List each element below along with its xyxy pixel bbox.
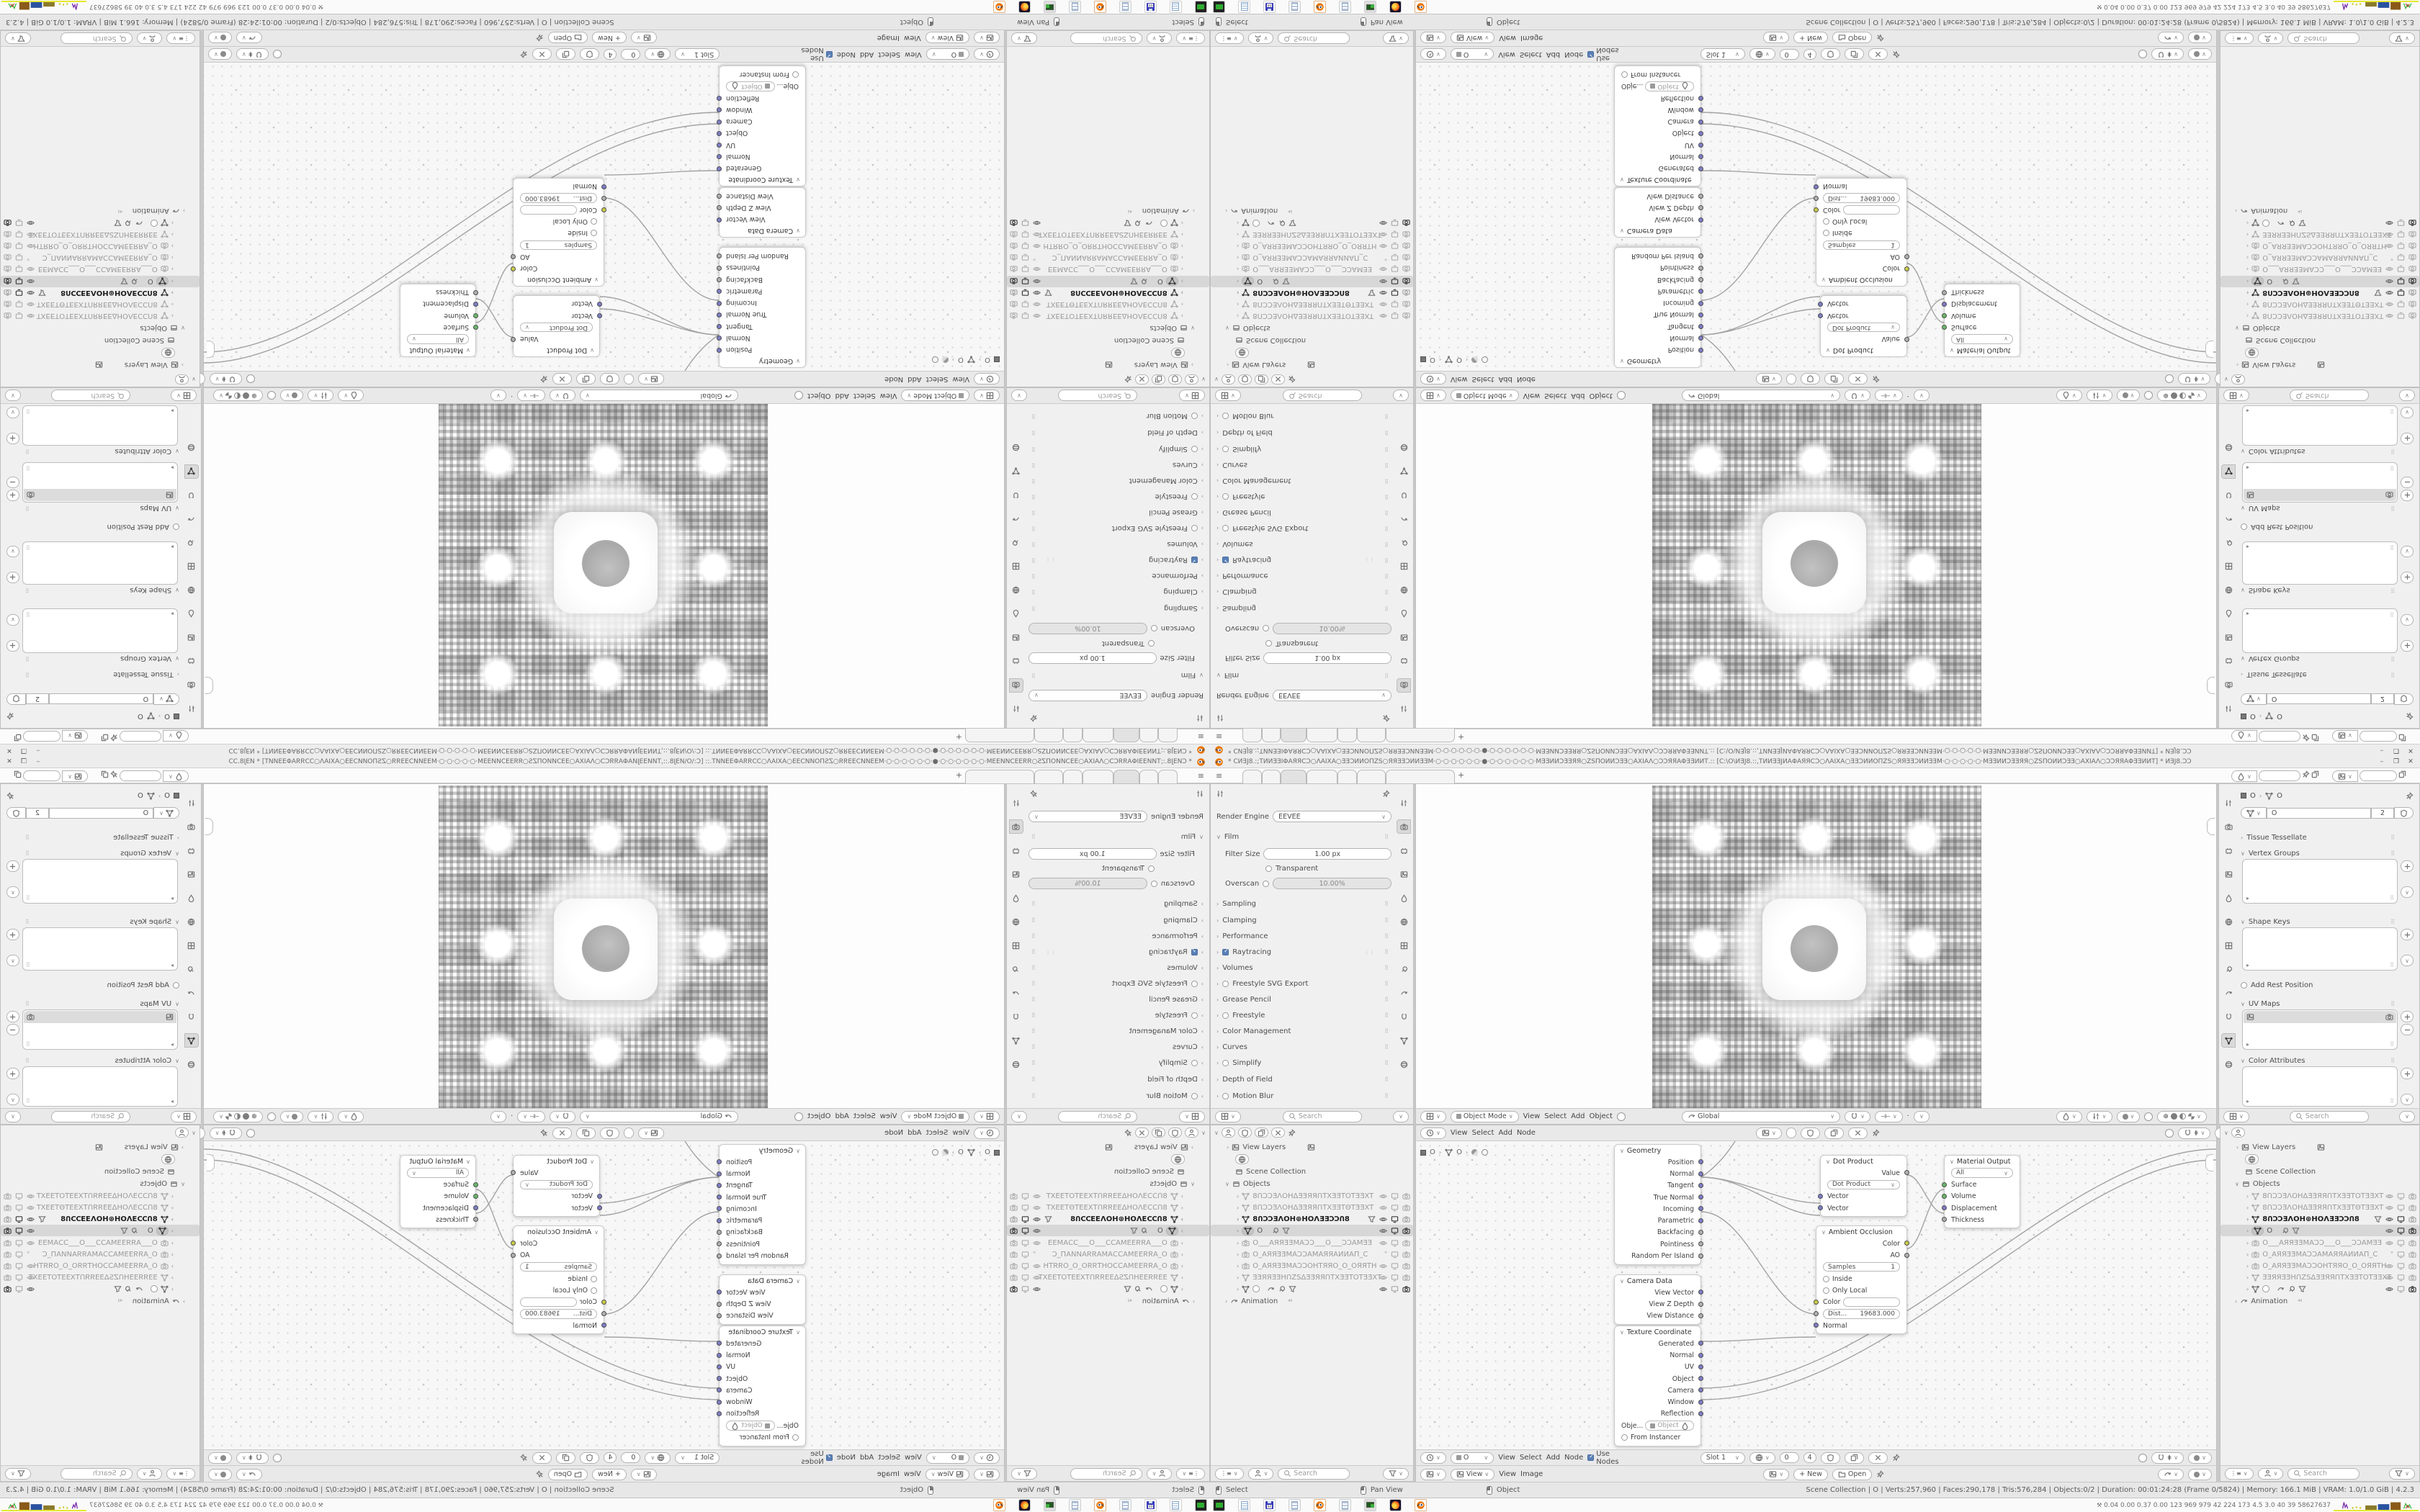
tab-constraints[interactable] — [1009, 1009, 1023, 1024]
fake-user-button[interactable] — [1168, 1128, 1182, 1138]
taskbar-notepad-icon[interactable] — [1170, 1, 1182, 13]
filter-icon-button[interactable] — [2231, 1128, 2245, 1138]
breadcrumb-object[interactable]: O — [2250, 713, 2256, 721]
menu-node[interactable]: Node — [1517, 375, 1536, 383]
motion-blur-checkbox[interactable] — [1222, 1093, 1229, 1099]
tab-constraints[interactable] — [1397, 488, 1411, 503]
freestyle-svg-checkbox[interactable] — [1191, 526, 1198, 532]
search-input[interactable]: Search — [1283, 1111, 1362, 1122]
menu-select[interactable]: Select — [853, 1112, 876, 1120]
workspace-tab-active[interactable] — [1281, 770, 1307, 783]
section-color-attributes[interactable]: ∨Color Attributes⠿ — [22, 1055, 179, 1066]
taskbar-calculator2-icon[interactable] — [1069, 1499, 1081, 1511]
gizmos-dropdown[interactable]: ∨ — [236, 32, 262, 44]
view-layers-row[interactable]: ›View Layers — [1007, 1141, 1209, 1153]
proportional-dropdown[interactable]: ∨ — [490, 390, 506, 402]
snap-circle[interactable] — [2138, 50, 2147, 59]
filter-dropdown-left[interactable]: ∨ — [1248, 1468, 1274, 1480]
breadcrumb-object[interactable]: O — [164, 792, 170, 800]
color-attributes-list[interactable]: ▸⠿ — [22, 405, 178, 446]
tab-output[interactable] — [1397, 843, 1411, 858]
transform-orientation-dropdown[interactable]: Global∨ — [580, 1111, 738, 1122]
maximize-button[interactable]: ❐ — [19, 747, 29, 754]
node-texture-coordinate[interactable]: ∨Texture Coordinate Generated Normal UV … — [719, 1326, 806, 1446]
copy-button[interactable] — [1255, 1128, 1268, 1138]
outliner-item[interactable]: ›O_АЯЯƎƎMАϽϽOHTЯЯO_O_OЯЯTH — [1, 240, 200, 252]
section-color-management[interactable]: ›Color Management⠿ — [1028, 475, 1204, 487]
workspace-tab[interactable] — [1034, 770, 1063, 783]
menu-select[interactable]: Select — [926, 1129, 949, 1137]
tab-world[interactable] — [1009, 583, 1023, 598]
outliner-item[interactable]: ›O_АЯЯƎƎMАϽϽАMАЯЯАИИАП_Ϲᘁ — [1, 252, 200, 264]
section-freestyle-svg[interactable]: ›Freestyle SVG Export⠿ — [1028, 523, 1204, 534]
scene-collection-row[interactable]: Scene Collection — [2220, 1166, 2419, 1177]
tab-physics[interactable] — [2221, 986, 2236, 1000]
tab-material[interactable] — [1397, 441, 1411, 455]
tab-modifiers[interactable] — [1397, 962, 1411, 976]
tool-icon[interactable] — [1216, 714, 1224, 722]
snapping-toggle[interactable]: ⋕∨ — [210, 374, 243, 385]
title-bar[interactable]: * ϹИƎJ8.:;ТИИƎƎІΦАЯЯϹϽ○ΛАІХА○ƎƎϽИИОΠΖS○Я… — [1210, 756, 2420, 768]
outliner-item[interactable]: ›8ՈϽϽƎΛOHΔƎƎЯЯՈTXƎƎTΘTƎƎXT — [1211, 299, 1413, 310]
remove-uv-map-button[interactable] — [6, 1024, 19, 1035]
fake-user-button[interactable] — [1238, 374, 1252, 384]
tab-output[interactable] — [1009, 654, 1023, 669]
node-camera-data[interactable]: ∨Camera Data View Vector View Z Depth Vi… — [719, 1274, 806, 1325]
breadcrumb-object[interactable]: O — [164, 713, 170, 721]
node-dot-product[interactable]: ∨Dot Product Value Dot Product∨ Vector V… — [513, 295, 600, 357]
compositor-row[interactable] — [1007, 1153, 1209, 1165]
menu-node[interactable]: Node — [884, 375, 903, 383]
new-image-button[interactable]: + New — [592, 1469, 627, 1480]
filter-icon-button[interactable] — [1185, 374, 1198, 384]
snapping-toggle[interactable]: ⋕∨ — [236, 49, 269, 60]
tab-material[interactable] — [1397, 1057, 1411, 1071]
menu-add[interactable]: Add — [860, 50, 874, 58]
fake-user-button[interactable] — [1238, 1128, 1252, 1138]
fake-user-button[interactable] — [1168, 374, 1182, 384]
uv-map-item[interactable] — [24, 489, 176, 501]
node-canvas[interactable]: O› O› ∨Geometry Position Normal Tangent … — [1416, 1141, 2216, 1449]
film-section[interactable]: ∨Film⠿ — [1028, 670, 1204, 681]
maximize-button[interactable]: ❐ — [2391, 747, 2401, 754]
editor-type-button[interactable]: ∨ — [2223, 390, 2249, 402]
unlink-button[interactable] — [1271, 374, 1285, 384]
unlink-material-button[interactable] — [1868, 1452, 1888, 1464]
uv-map-item[interactable] — [24, 1011, 176, 1023]
outliner-item[interactable]: ›8ՈϽϽƎΛOHΔƎƎЯЯՈTXƎƎTOTƎƎXT — [2220, 1190, 2419, 1202]
taskbar-blender2-icon[interactable] — [993, 1, 1005, 13]
outliner-item[interactable]: ›ƎƎЯЯƎƎHՈΖSΔƎƎЯЯՈTXƎƎTOTƎƎXT — [2220, 229, 2419, 240]
title-bar[interactable]: * ϹИƎJ8.:;ТИИƎƎІΦАЯЯϹϽ○ΛАІХА○ƎƎϽИИОΠΖS○Я… — [1210, 744, 2420, 756]
section-sampling[interactable]: ›Sampling⠿ — [1216, 898, 1391, 909]
outliner-item-selected[interactable]: ›O — [2220, 1225, 2419, 1236]
tab-output[interactable] — [2221, 654, 2236, 669]
editor-type-button[interactable]: ∨ — [974, 390, 1000, 402]
shading-mode-pill[interactable]: ⊕ ∨ — [2157, 1111, 2206, 1122]
snapping-toggle[interactable]: ⋕∨ — [236, 1452, 269, 1464]
breadcrumb-data[interactable]: O — [2277, 713, 2282, 721]
tab-render[interactable] — [1397, 678, 1411, 693]
node-canvas[interactable]: O› O› ∨Geometry Position Normal Tangent … — [204, 1141, 1004, 1449]
wireframe-icon[interactable]: ⊕ — [251, 1113, 257, 1120]
workspace-tab[interactable] — [1386, 770, 1455, 783]
material-datablock-button[interactable]: ∨ — [645, 49, 671, 60]
vertex-group-specials-button[interactable]: ∨ — [6, 614, 19, 626]
transparent-checkbox[interactable] — [1148, 641, 1155, 647]
outliner-item-selected[interactable]: ›O — [1, 1225, 200, 1236]
mesh-name-field[interactable]: O — [2267, 694, 2371, 705]
menu-select[interactable]: Select — [1544, 392, 1567, 400]
add-uv-map-button[interactable] — [6, 1011, 19, 1022]
animation-row[interactable]: ›Animation⁴² — [1007, 205, 1209, 217]
workspace-tab[interactable] — [1139, 770, 1158, 783]
output-target-dropdown[interactable]: All∨ — [1951, 334, 2013, 344]
taskbar-blender2-icon[interactable] — [1415, 1499, 1427, 1511]
collapse-icon[interactable]: ∨ — [1201, 1130, 1206, 1136]
view-layers-row[interactable]: ›View Layers — [1211, 1141, 1413, 1153]
color-attributes-list[interactable]: ▸⠿ — [2242, 1066, 2398, 1107]
mesh-name-field[interactable]: O — [49, 808, 153, 819]
tab-world[interactable] — [184, 914, 199, 929]
fake-user-button[interactable] — [1821, 1452, 1840, 1464]
section-performance[interactable]: ›Performance⠿ — [1216, 930, 1391, 942]
section-tissue-tessellate[interactable]: ›Tissue Tessellate⠿ — [2241, 832, 2398, 843]
tab-render[interactable] — [2221, 678, 2236, 693]
overscan-input[interactable]: 10.00% — [1028, 878, 1147, 889]
tab-output[interactable] — [2221, 843, 2236, 858]
outliner-item[interactable]: › — [1211, 217, 1413, 229]
tab-world[interactable] — [1009, 914, 1023, 929]
search-input[interactable]: Search — [60, 1468, 133, 1480]
tool-icon[interactable] — [1196, 790, 1204, 798]
taskbar-blender-icon[interactable] — [1094, 1499, 1106, 1511]
inside-checkbox[interactable] — [591, 1276, 597, 1282]
taskbar-save-icon[interactable]: 64 — [1263, 1499, 1276, 1511]
section-grease-pencil[interactable]: ›Grease Pencil⠿ — [1216, 507, 1391, 518]
collapse-icon[interactable]: ∨ — [1214, 1130, 1219, 1136]
open-image-button[interactable]: Open — [548, 32, 588, 44]
title-bar[interactable]: * ϹИƎJ8.:;ТИИƎƎІΦАЯЯϹϽ○ΛАІХА○ƎƎϽИИОΠΖS○Я… — [0, 744, 1210, 756]
vertex-groups-list[interactable]: ▸⠿ — [22, 608, 178, 653]
overscan-input[interactable]: 10.00% — [1028, 623, 1147, 634]
editor-type-button[interactable]: ∨ — [1420, 49, 1446, 60]
add-vertex-group-button[interactable] — [6, 860, 19, 872]
section-simplify[interactable]: ›Simplify⠿ — [1216, 444, 1391, 455]
outliner-item[interactable]: ›8ՈϽϽƎΛOHΔƎƎЯЯՈTXƎƎTOTƎƎXT — [1211, 1190, 1413, 1202]
inside-checkbox[interactable] — [591, 230, 597, 236]
display-mode-dropdown[interactable]: ⋮≡∨ — [1215, 1468, 1244, 1480]
vector-math-operation-dropdown[interactable]: Dot Product∨ — [520, 323, 593, 333]
uv-maps-list[interactable]: ▸⠿ — [22, 1009, 178, 1050]
material-name-field[interactable]: 0 — [621, 49, 640, 60]
mode-dropdown[interactable]: Object Mode∨ — [901, 390, 969, 402]
workspace-tab[interactable] — [1357, 729, 1386, 742]
material-shading-icon[interactable] — [234, 392, 241, 399]
viewport-3d[interactable]: ∨ Object Mode∨ View Select Add Object Gl… — [203, 783, 1005, 1125]
workspace-tab[interactable] — [1063, 729, 1083, 742]
node-camera-data[interactable]: ∨Camera Data View Vector View Z Depth Vi… — [1614, 1274, 1701, 1325]
freestyle-checkbox[interactable] — [1191, 1012, 1198, 1019]
vector-math-operation-dropdown[interactable]: Dot Product∨ — [520, 1180, 593, 1190]
tab-scene[interactable] — [184, 891, 199, 905]
collapse-icon[interactable]: ∨ — [2224, 1130, 2228, 1136]
taskbar-monitor-icon[interactable] — [1364, 1499, 1376, 1511]
section-performance[interactable]: ›Performance⠿ — [1216, 570, 1391, 582]
tool-icon[interactable] — [1216, 790, 1224, 798]
gizmos-dropdown[interactable]: ∨ — [338, 1111, 364, 1122]
vertex-group-specials-button[interactable]: ∨ — [2401, 614, 2414, 626]
viewlayer-datablock-selector[interactable]: ∨ — [2332, 770, 2406, 782]
section-freestyle[interactable]: ›Freestyle⠿ — [1216, 1009, 1391, 1021]
add-rest-position-checkbox[interactable] — [2241, 524, 2247, 531]
vertex-group-specials-button[interactable]: ∨ — [2401, 886, 2414, 898]
copy-datablock-button[interactable] — [576, 374, 596, 385]
add-rest-position-row[interactable]: Add Rest Position — [2241, 521, 2398, 533]
editor-type-button[interactable]: ∨ — [1420, 1452, 1446, 1464]
color-attribute-specials-button[interactable]: ∨ — [2401, 1094, 2414, 1105]
menu-view[interactable]: View — [1523, 392, 1541, 400]
workspace-tab[interactable] — [1307, 770, 1337, 783]
hamburger-menu-icon[interactable]: ≡ — [1198, 771, 1204, 780]
solid-shading-icon[interactable] — [243, 392, 249, 399]
uv-map-item[interactable] — [2244, 489, 2396, 501]
workspace-tab[interactable] — [1063, 770, 1083, 783]
outliner-item-selected[interactable]: ›O — [2220, 276, 2419, 287]
sidebar-toggle-arrow[interactable] — [207, 341, 215, 358]
workspace-tab[interactable] — [1083, 770, 1113, 783]
section-shape-keys[interactable]: ∨Shape Keys⠿ — [22, 585, 179, 596]
editor-type-button[interactable]: ∨ — [1420, 390, 1446, 402]
uv-maps-list[interactable]: ▸⠿ — [2242, 462, 2398, 503]
render-engine-dropdown[interactable]: EEVEE∨ — [1028, 690, 1147, 701]
tab-render[interactable] — [184, 819, 199, 834]
workspace-tab-active[interactable] — [1281, 729, 1307, 742]
taskbar-blender-icon[interactable] — [1314, 1499, 1326, 1511]
add-shape-key-button[interactable] — [6, 572, 19, 583]
unlink-button[interactable] — [1848, 1128, 1868, 1139]
material-users-count[interactable]: 4 — [1803, 49, 1816, 60]
menu-select[interactable]: Select — [926, 375, 949, 383]
display-mode-dropdown[interactable]: ⋮≡∨ — [166, 33, 195, 45]
camera-icon[interactable] — [27, 1013, 35, 1021]
editor-type-button[interactable]: ∨ — [1179, 390, 1205, 402]
outliner-item-selected[interactable]: ›O — [1211, 276, 1413, 287]
menu-view[interactable]: View — [904, 34, 921, 42]
section-depth-of-field[interactable]: ›Depth of Field⠿ — [1216, 1074, 1391, 1085]
vector-math-operation-dropdown[interactable]: Dot Product∨ — [1827, 1180, 1900, 1190]
editor-type-button[interactable]: ∨ — [1420, 1128, 1446, 1139]
node-ambient-occlusion[interactable]: ∨Ambient Occlusion Color AO Samples1 Ins… — [1816, 178, 1907, 287]
filter-funnel-dropdown[interactable]: ∨ — [1383, 1468, 1409, 1480]
outliner-item[interactable]: ›O_АЯЯƎƎMАϽϽАMАЯЯАИИАП_Ϲᘁ — [1211, 252, 1413, 264]
taskbar-firefox-icon[interactable] — [1018, 1, 1031, 13]
outliner-item[interactable]: ›8ՈϽϽƎΛOHΔƎƎЯЯՈTXƎƎTOTƎƎXT — [1, 1190, 200, 1202]
shader-type-dropdown[interactable]: O∨ — [926, 1452, 969, 1464]
object-selector[interactable]: Object — [1645, 81, 1694, 91]
tab-modifiers[interactable] — [184, 536, 199, 550]
shading-circle[interactable] — [2144, 1112, 2153, 1121]
section-clamping[interactable]: ›Clamping⠿ — [1216, 586, 1391, 598]
scene-collection-row[interactable]: Scene Collection — [2220, 335, 2419, 346]
node-geometry[interactable]: ∨Geometry Position Normal Tangent True N… — [1614, 1144, 1701, 1265]
samples-input[interactable]: Samples1 — [1823, 240, 1900, 251]
section-volumes[interactable]: ›Volumes⠿ — [1216, 962, 1391, 973]
workspace-tab[interactable] — [1307, 729, 1337, 742]
transparent-row[interactable]: Transparent — [1265, 863, 1391, 874]
color-field[interactable] — [520, 1297, 577, 1308]
filter-dropdown-left[interactable]: ∨ — [1147, 33, 1173, 45]
section-motion-blur[interactable]: ›Motion Blur⠿ — [1216, 1090, 1391, 1102]
snapping-toggle[interactable]: ∨ — [550, 390, 575, 402]
copy-icon[interactable] — [101, 770, 109, 778]
close-button[interactable]: ✕ — [4, 758, 14, 765]
tab-object[interactable] — [1009, 559, 1023, 574]
node-material-output[interactable]: ∨Material Output All∨ Surface Volume Dis… — [400, 284, 476, 357]
outliner-item[interactable]: ›8ՈϽϽƎΛOHΔƎƎЯЯՈTXƎƎTΘTƎƎXT — [1007, 1202, 1209, 1213]
distance-input[interactable]: Dist...19683.000 — [1823, 1309, 1900, 1319]
editor-type-button[interactable]: ∨ — [974, 374, 1000, 385]
mode-dropdown[interactable]: Object Mode∨ — [1451, 390, 1519, 402]
section-grease-pencil[interactable]: ›Grease Pencil⠿ — [1216, 994, 1391, 1005]
film-section[interactable]: ∨Film⠿ — [1216, 831, 1391, 842]
node-material-output[interactable]: ∨Material Output All∨ Surface Volume Dis… — [1944, 284, 2020, 357]
tab-material[interactable] — [184, 441, 199, 455]
section-color-management[interactable]: ›Color Management⠿ — [1028, 1025, 1204, 1037]
tab-viewlayer[interactable] — [2221, 867, 2236, 881]
rendered-shading-icon[interactable] — [225, 1113, 232, 1120]
taskbar-calculator-icon[interactable] — [1119, 1499, 1131, 1511]
tab-object[interactable] — [184, 938, 199, 953]
outliner-item[interactable]: › — [1211, 1283, 1413, 1295]
copy-icon[interactable] — [2311, 770, 2319, 778]
outliner-item[interactable]: ›O___АЯЯƎƎMАϽϽ___O___ϽϽАMƎƎ — [2220, 264, 2419, 275]
tab-scene[interactable] — [1397, 607, 1411, 621]
scene-collection-row[interactable]: Scene Collection — [1211, 1166, 1413, 1177]
display-mode-dropdown[interactable]: ⋮≡∨ — [166, 1468, 195, 1480]
pin-icon[interactable] — [1872, 1129, 1880, 1137]
taskbar-blender-icon[interactable] — [1094, 1, 1106, 13]
uv-maps-list[interactable]: ▸⠿ — [2242, 1009, 2398, 1050]
shading-mode-pill[interactable]: ⊕ ∨ — [2157, 390, 2206, 402]
objects-collection-row[interactable]: ∨Objects — [2220, 323, 2419, 334]
viewlayer-datablock-selector[interactable]: ∨ — [14, 770, 88, 782]
image-datablock-button[interactable]: ∨ — [1756, 374, 1782, 385]
tab-viewlayer[interactable] — [184, 867, 199, 881]
tab-tool[interactable] — [2221, 702, 2236, 716]
section-freestyle-svg[interactable]: ›Freestyle SVG Export⠿ — [1216, 523, 1391, 534]
section-performance[interactable]: ›Performance⠿ — [1028, 930, 1204, 942]
outliner-item-selected[interactable]: ›O — [1, 276, 200, 287]
compositor-row[interactable] — [1211, 347, 1413, 359]
menu-object[interactable]: Object — [1590, 392, 1613, 400]
mode-options-circle[interactable] — [1617, 392, 1626, 400]
filter-funnel-dropdown[interactable]: ∨ — [2389, 33, 2415, 45]
unlink-button[interactable] — [1271, 1128, 1285, 1138]
node-dot-product[interactable]: ∨Dot Product Value Dot Product∨ Vector V… — [1820, 1155, 1907, 1217]
section-simplify[interactable]: ›Simplify⠿ — [1028, 444, 1204, 455]
tab-object[interactable] — [2221, 938, 2236, 953]
overlays-toggle[interactable]: ∨ — [208, 1452, 232, 1464]
material-shading-icon[interactable] — [2179, 1113, 2186, 1120]
search-input[interactable]: Search — [1058, 390, 1137, 402]
unlink-button[interactable] — [552, 1128, 572, 1139]
filter-dropdown-left[interactable]: ∨ — [1248, 33, 1274, 45]
compositor-row[interactable] — [1, 347, 200, 359]
tab-render[interactable] — [1009, 678, 1023, 693]
taskbar-console-icon[interactable] — [1213, 1499, 1225, 1511]
view-layers-row[interactable]: ›View Layers — [1007, 359, 1209, 371]
section-curves[interactable]: ›Curves⠿ — [1028, 1041, 1204, 1053]
copy-material-button[interactable] — [1845, 49, 1864, 60]
add-uv-map-button[interactable] — [2401, 490, 2414, 501]
copy-button[interactable] — [1152, 374, 1165, 384]
wireframe-icon[interactable]: ⊕ — [2163, 392, 2169, 400]
options-dropdown[interactable]: ∨ — [1393, 390, 1409, 402]
node-material-output[interactable]: ∨Material Output All∨ Surface Volume Dis… — [1944, 1155, 2020, 1228]
menu-view[interactable]: View — [880, 392, 897, 400]
taskbar-firefox-icon[interactable] — [1389, 1499, 1402, 1511]
node-canvas[interactable]: O› O› ∨Geometry Position Normal Tangent … — [1416, 63, 2216, 371]
scene-collection-row[interactable]: Scene Collection — [1, 1166, 200, 1177]
filter-icon-button[interactable] — [1222, 374, 1235, 384]
section-vertex-groups[interactable]: ∨Vertex Groups⠿ — [22, 847, 179, 859]
workspace-tab[interactable] — [1262, 729, 1281, 742]
taskbar-blender2-icon[interactable] — [993, 1499, 1005, 1511]
scene-collection-row[interactable]: Scene Collection — [1, 335, 200, 346]
shape-key-specials-button[interactable]: ∨ — [2401, 546, 2414, 557]
menu-add[interactable]: Add — [1571, 392, 1585, 400]
tab-render[interactable] — [1397, 819, 1411, 834]
workspace-tab[interactable] — [1262, 770, 1281, 783]
tab-scene[interactable] — [1009, 607, 1023, 621]
section-grease-pencil[interactable]: ›Grease Pencil⠿ — [1028, 994, 1204, 1005]
tab-physics[interactable] — [1009, 986, 1023, 1000]
shape-key-specials-button[interactable]: ∨ — [2401, 955, 2414, 966]
fake-user-shield-button[interactable] — [6, 807, 26, 819]
section-uv-maps[interactable]: ∨UV Maps⠿ — [22, 998, 179, 1009]
scene-datablock-selector[interactable]: ∨ — [101, 770, 189, 782]
vertex-group-specials-button[interactable]: ∨ — [6, 886, 19, 898]
filter-size-input[interactable]: 1.00 px — [1263, 848, 1391, 860]
open-image-button[interactable]: Open — [1832, 1469, 1872, 1480]
tab-tool[interactable] — [184, 796, 199, 810]
display-mode-dropdown[interactable]: ⋮≡∨ — [2225, 1468, 2254, 1480]
vector-math-operation-dropdown[interactable]: Dot Product∨ — [1827, 323, 1900, 333]
workspace-tab-active[interactable] — [1113, 770, 1139, 783]
scene-collection-row[interactable]: Scene Collection — [1211, 335, 1413, 346]
pin-icon[interactable] — [1030, 790, 1038, 798]
maximize-button[interactable]: ❐ — [2391, 758, 2401, 765]
pin-icon[interactable] — [520, 1454, 528, 1462]
motion-blur-checkbox[interactable] — [1191, 1093, 1198, 1099]
section-curves[interactable]: ›Curves⠿ — [1028, 459, 1204, 471]
tab-physics[interactable] — [1397, 512, 1411, 526]
pin-icon[interactable] — [1382, 714, 1390, 722]
section-depth-of-field[interactable]: ›Depth of Field⠿ — [1028, 427, 1204, 438]
taskbar-save-icon[interactable]: 64 — [1144, 1, 1157, 13]
xray-toggle[interactable]: ∨ — [280, 1111, 304, 1122]
material-users-count[interactable]: 4 — [1803, 1452, 1816, 1463]
tab-render[interactable] — [1009, 819, 1023, 834]
tab-data[interactable] — [1397, 1033, 1411, 1048]
proportional-editing-dot[interactable]: · — [511, 392, 513, 400]
rendered-shading-icon[interactable] — [2188, 1113, 2195, 1120]
outliner-item[interactable]: ›O_АЯЯƎƎMАϽϽАMАЯЯАИИАП_Ϲᘁ — [1007, 1248, 1209, 1260]
menu-view[interactable]: View — [1523, 1112, 1541, 1120]
only-local-checkbox[interactable] — [1823, 1287, 1829, 1294]
taskbar-notepad-icon[interactable] — [1170, 1499, 1182, 1511]
